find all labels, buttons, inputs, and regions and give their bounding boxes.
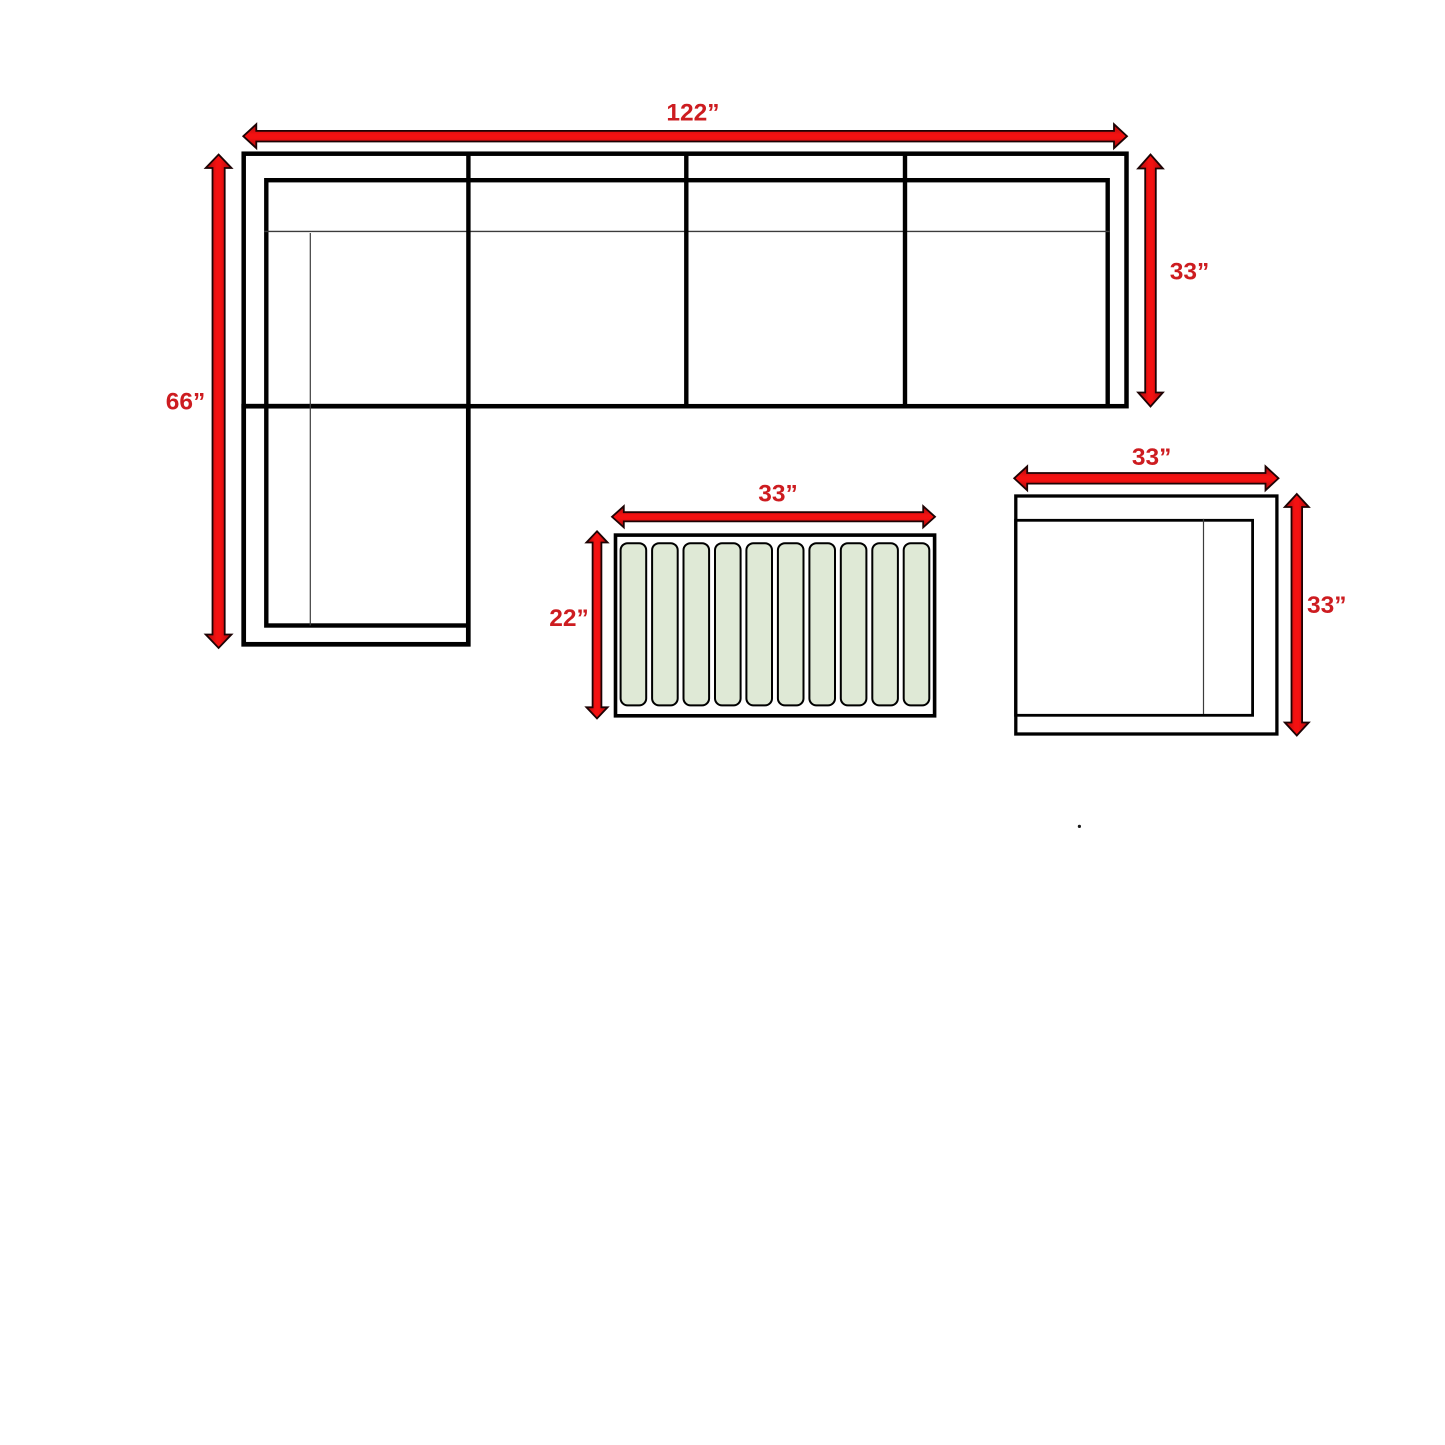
svg-text:33”: 33” (758, 481, 798, 508)
svg-text:33”: 33” (1132, 444, 1172, 471)
svg-text:66”: 66” (166, 389, 206, 416)
svg-text:122”: 122” (666, 99, 719, 126)
svg-text:22”: 22” (549, 605, 589, 632)
svg-text:33”: 33” (1170, 259, 1210, 286)
svg-text:33”: 33” (1307, 592, 1347, 619)
